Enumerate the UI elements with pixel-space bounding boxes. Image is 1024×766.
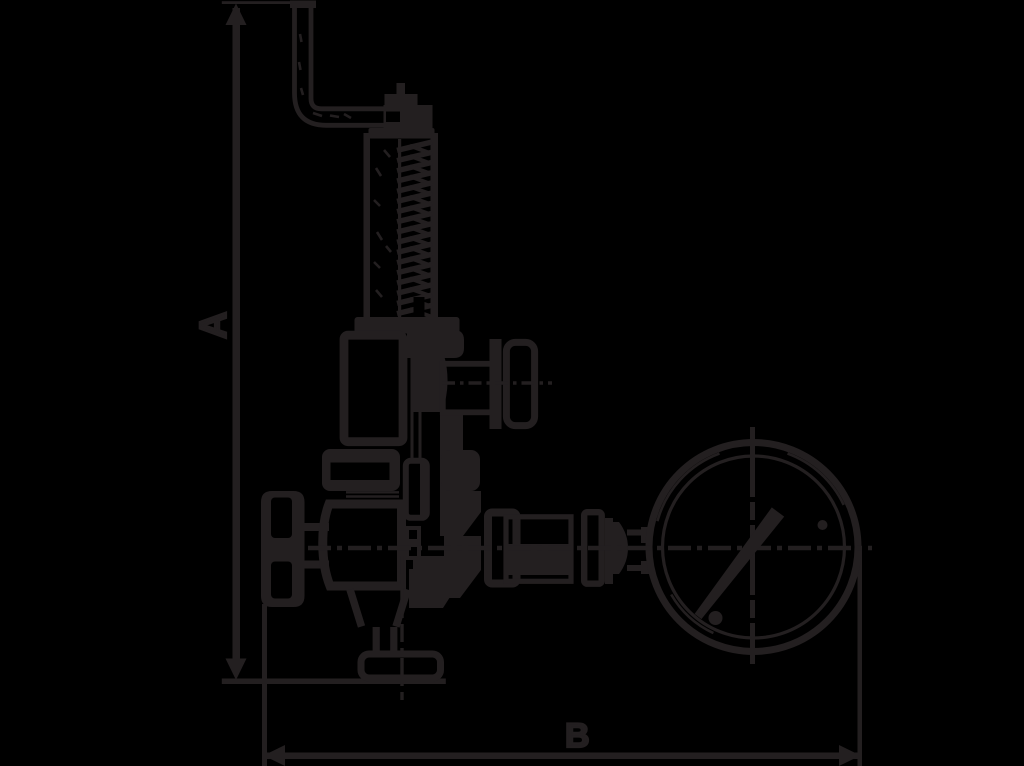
- svg-text:B: B: [565, 717, 590, 755]
- svg-text:A: A: [193, 312, 235, 339]
